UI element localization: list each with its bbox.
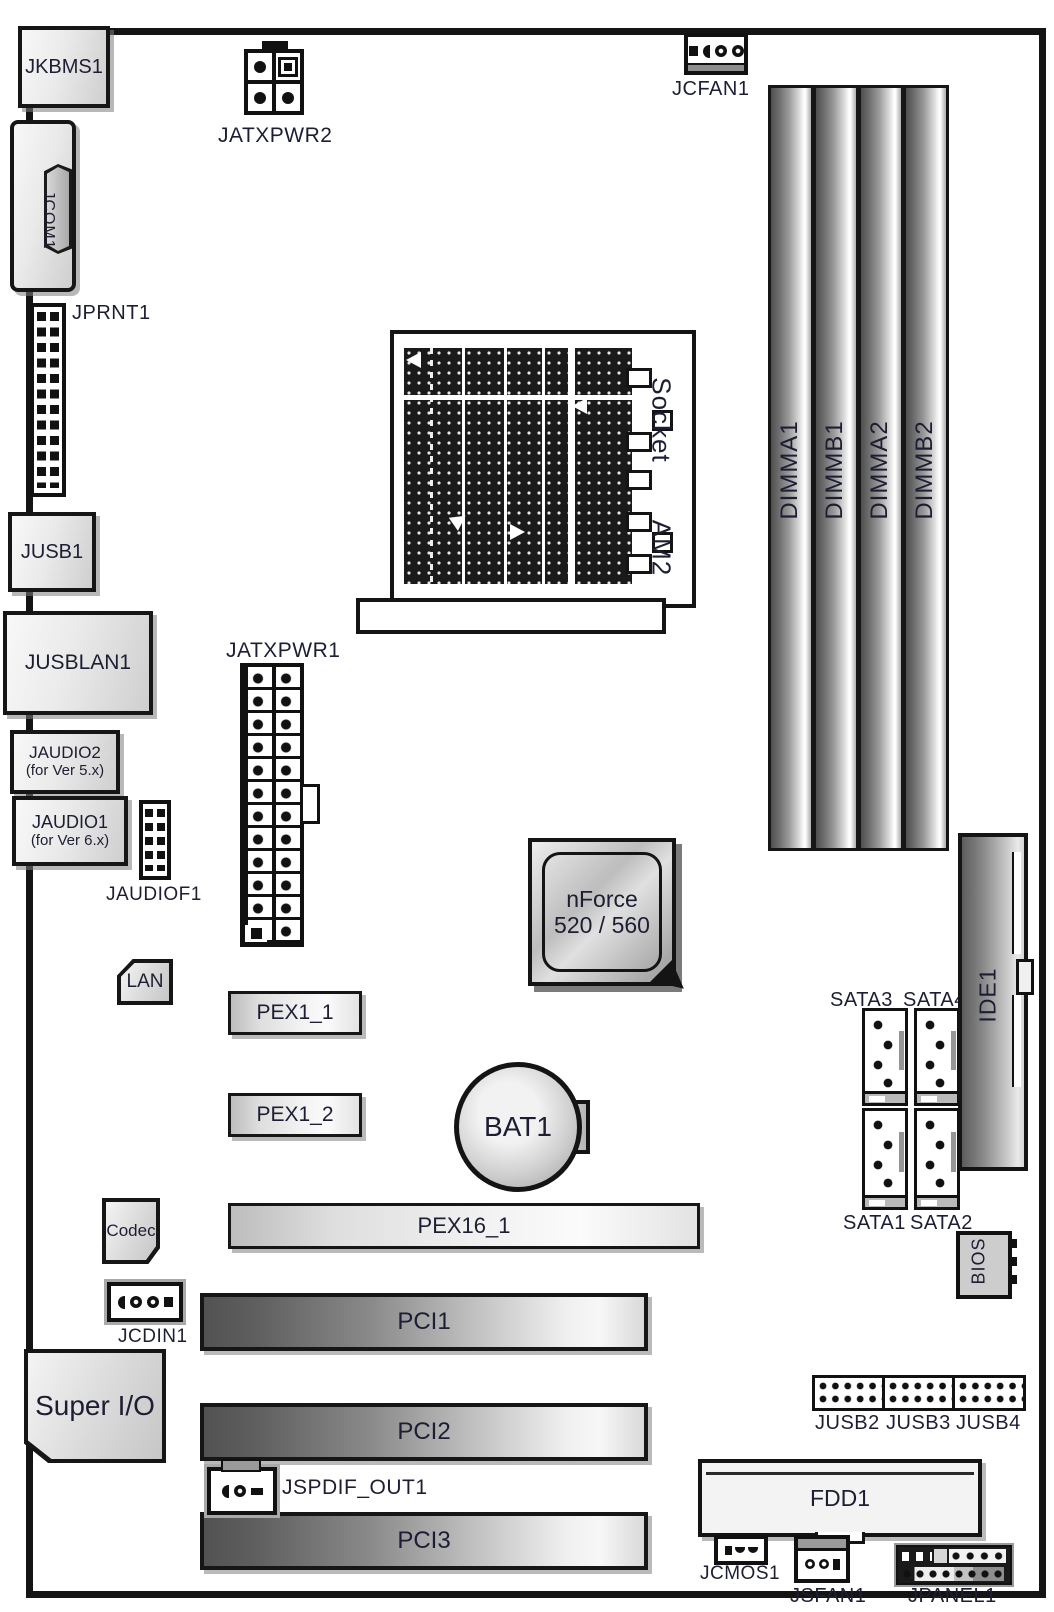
jcfan1-label: JCFAN1 bbox=[672, 78, 749, 101]
jusb2-label: JUSB2 bbox=[815, 1412, 880, 1435]
jcdin1-label: JCDIN1 bbox=[118, 1326, 188, 1348]
socket-arrow bbox=[449, 509, 470, 531]
connector-jatxpwr2 bbox=[244, 49, 304, 115]
pci1-label: PCI1 bbox=[397, 1308, 450, 1336]
chip-super-io: Super I/O bbox=[24, 1349, 166, 1463]
jspdif-out1-label: JSPDIF_OUT1 bbox=[282, 1476, 428, 1500]
jaudio2-label: JAUDIO2 bbox=[29, 744, 101, 763]
socket-arrow bbox=[510, 524, 525, 540]
pex1-2-label: PEX1_2 bbox=[256, 1103, 333, 1127]
jprnt1-pin-column bbox=[37, 312, 46, 488]
jsfan1-pins bbox=[798, 1549, 846, 1579]
jaudio1-sublabel: (for Ver 6.x) bbox=[31, 833, 109, 850]
battery-bat1: BAT1 bbox=[454, 1062, 582, 1192]
connector-sata2 bbox=[914, 1108, 960, 1210]
socket-top-notch bbox=[556, 336, 628, 344]
jkbms1-label: JKBMS1 bbox=[25, 56, 103, 79]
chip-nforce: nForce 520 / 560 bbox=[528, 838, 676, 986]
socket-label: Socket bbox=[646, 377, 677, 463]
codec-label: Codec bbox=[106, 1221, 155, 1241]
header-jprnt1 bbox=[30, 303, 66, 497]
header-jusb3 bbox=[882, 1375, 956, 1411]
jcmos1-pins bbox=[718, 1539, 764, 1561]
header-jaudiof1 bbox=[139, 800, 171, 880]
header-jusb4 bbox=[952, 1375, 1026, 1411]
ide1-slot-gap bbox=[1012, 852, 1021, 954]
super-io-label: Super I/O bbox=[35, 1390, 155, 1422]
header-jspdif-out1 bbox=[207, 1467, 277, 1515]
port-jusblan1: JUSBLAN1 bbox=[3, 611, 153, 715]
cpu-socket-pin-grid bbox=[404, 348, 632, 584]
jspdif-pins bbox=[211, 1471, 273, 1511]
port-jcom1: JCOM1 bbox=[10, 120, 76, 292]
socket-retention-bar bbox=[356, 598, 666, 634]
connector-jatxpwr1 bbox=[240, 663, 304, 947]
pci3-label: PCI3 bbox=[397, 1527, 450, 1555]
bios-label: BIOS bbox=[969, 1237, 990, 1284]
port-jaudio1: JAUDIO1 (for Ver 6.x) bbox=[12, 796, 128, 866]
fdd1-label: FDD1 bbox=[810, 1485, 870, 1512]
dimma1-label: DIMMA1 bbox=[776, 420, 804, 519]
header-jcmos1 bbox=[714, 1535, 768, 1565]
header-jusb2 bbox=[812, 1375, 886, 1411]
jusb4-label: JUSB4 bbox=[956, 1412, 1021, 1435]
jprnt1-label: JPRNT1 bbox=[72, 302, 151, 325]
jatxpwr1-key-pin bbox=[245, 925, 267, 942]
slot-pci3: PCI3 bbox=[200, 1512, 648, 1570]
jusb3-label: JUSB3 bbox=[886, 1412, 951, 1435]
jatxpwr1-label: JATXPWR1 bbox=[226, 639, 340, 663]
chip-codec: Codec bbox=[102, 1198, 160, 1264]
port-jaudio2: JAUDIO2 (for Ver 5.x) bbox=[10, 730, 120, 794]
slot-pci2: PCI2 bbox=[200, 1403, 648, 1461]
jcmos1-label: JCMOS1 bbox=[700, 1563, 780, 1585]
jpanel1-pins bbox=[902, 1552, 932, 1561]
jsfan1-label: JSFAN1 bbox=[790, 1585, 866, 1608]
slot-pci1: PCI1 bbox=[200, 1293, 648, 1351]
header-jcfan1 bbox=[684, 33, 748, 75]
ide1-slot-gap bbox=[1012, 995, 1021, 1087]
jaudio1-label: JAUDIO1 bbox=[32, 813, 108, 833]
header-jcdin1 bbox=[107, 1282, 183, 1322]
connector-sata3 bbox=[862, 1008, 908, 1106]
jusb1-label: JUSB1 bbox=[21, 541, 83, 564]
header-jsfan1 bbox=[794, 1535, 850, 1583]
ide1-label: IDE1 bbox=[975, 967, 1002, 1022]
header-jpanel1 bbox=[896, 1545, 1012, 1585]
dimma2-label: DIMMA2 bbox=[866, 420, 894, 519]
jpanel1-pins bbox=[949, 1549, 1006, 1563]
dimmb1-label: DIMMB1 bbox=[821, 420, 849, 519]
port-jkbms1: JKBMS1 bbox=[18, 26, 110, 108]
pex1-1-label: PEX1_1 bbox=[256, 1001, 333, 1025]
lan-label: LAN bbox=[127, 971, 164, 993]
jcom1-label: JCOM1 bbox=[39, 190, 57, 249]
socket-top-notch bbox=[408, 336, 480, 344]
socket-arrow bbox=[406, 352, 421, 368]
jprnt1-pin-column bbox=[50, 312, 59, 488]
connector-fdd1: FDD1 bbox=[698, 1459, 982, 1537]
fdd1-key-line bbox=[706, 1472, 974, 1475]
slot-pex1-1: PEX1_1 bbox=[228, 991, 362, 1035]
slot-pex16-1: PEX16_1 bbox=[228, 1203, 700, 1249]
connector-sata1 bbox=[862, 1108, 908, 1210]
slot-pex1-2: PEX1_2 bbox=[228, 1093, 362, 1137]
bat1-label: BAT1 bbox=[484, 1111, 552, 1143]
jcfan1-base bbox=[688, 63, 744, 71]
ide1-key-notch bbox=[1016, 959, 1034, 995]
jusblan1-label: JUSBLAN1 bbox=[25, 651, 131, 675]
connector-sata4 bbox=[914, 1008, 960, 1106]
jcdin1-pins bbox=[111, 1286, 179, 1318]
jaudiof1-label: JAUDIOF1 bbox=[106, 884, 202, 906]
jpanel1-label: JPANEL1 bbox=[908, 1585, 997, 1608]
socket-am2-label: AM2 bbox=[646, 520, 677, 576]
jatxpwr2-label: JATXPWR2 bbox=[218, 124, 332, 148]
socket-arrow bbox=[572, 398, 587, 414]
jatxpwr1-latch bbox=[300, 784, 320, 824]
sata1-label: SATA1 bbox=[843, 1212, 906, 1235]
port-jusb1: JUSB1 bbox=[8, 512, 96, 592]
jpanel1-key-cell bbox=[934, 1549, 947, 1563]
nforce-die-outline bbox=[542, 852, 662, 972]
jcfan1-pins bbox=[688, 37, 744, 65]
pci2-label: PCI2 bbox=[397, 1418, 450, 1446]
jpanel1-pins bbox=[900, 1567, 1004, 1581]
jatxpwr1-pin-grid bbox=[244, 667, 300, 943]
socket-tab bbox=[626, 470, 652, 490]
dimmb2-label: DIMMB2 bbox=[911, 420, 939, 519]
jaudiof1-pin-column bbox=[145, 809, 153, 871]
jaudio2-sublabel: (for Ver 5.x) bbox=[26, 763, 104, 780]
jaudiof1-pin-column bbox=[157, 809, 165, 871]
jatxpwr2-latch bbox=[262, 41, 288, 49]
pex16-1-label: PEX16_1 bbox=[418, 1213, 511, 1239]
motherboard-layout-diagram: JKBMS1 JCOM1 JPRNT1 JUSB1 JUSBLAN1 JAUDI… bbox=[0, 0, 1054, 1612]
